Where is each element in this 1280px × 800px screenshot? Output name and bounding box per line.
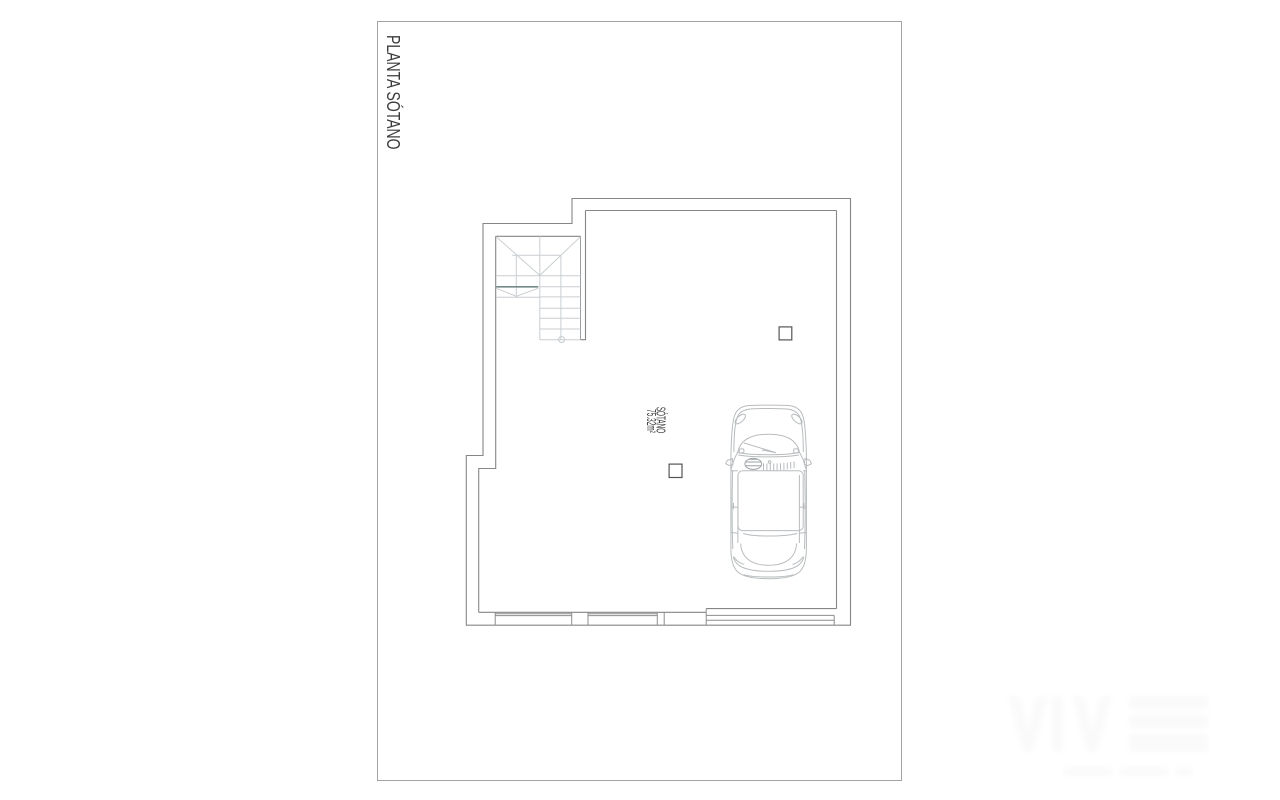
svg-text:PLANTA SÓTANO: PLANTA SÓTANO: [383, 35, 404, 150]
svg-text:75.32m²: 75.32m²: [643, 409, 657, 433]
